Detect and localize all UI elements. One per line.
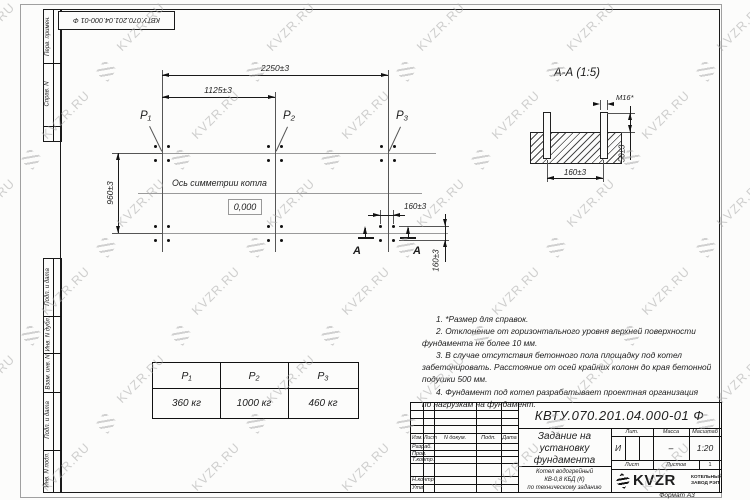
margin-label-text: Инв. N дубл. <box>45 316 51 351</box>
dim-text-960: 960±3 <box>103 173 117 213</box>
anchor-bolt-point <box>167 225 170 228</box>
anchor-bolt-point <box>167 239 170 242</box>
margin-label-podp-data-1: Подп. и дата <box>43 258 53 315</box>
lit-value: И <box>611 437 625 459</box>
list-label: Лист <box>611 462 653 468</box>
section-letter-right: А <box>413 245 421 257</box>
row-utv: Утв. <box>412 485 425 491</box>
doc-title-line: установку <box>518 442 611 454</box>
load-table-header-p2: P₂ <box>220 363 288 388</box>
anchor-bolt-point <box>267 145 270 148</box>
dim-line-960 <box>118 153 119 233</box>
dim-text-2250: 2250±3 <box>245 63 305 73</box>
load-table: P₁ P₂ P₃ 360 кг 1000 кг 460 кг <box>152 362 359 419</box>
anchor-bolt-point <box>167 159 170 162</box>
anchor-bolt-right <box>600 112 608 159</box>
massa-value: – <box>653 437 689 459</box>
row-prov: Пров. <box>412 451 427 457</box>
anchor-bolt-point <box>154 239 157 242</box>
note-line: забетонировать. Расстояние от осей крайн… <box>422 361 722 373</box>
margin-label-podp-data-2: Подп. и дата <box>43 391 53 449</box>
margin-label-inv-dubl: Инв. N дубл. <box>43 315 53 352</box>
row-nkontr: Н.контр. <box>412 477 435 483</box>
note-line: 2. Отклонение от горизонтального уровня … <box>422 325 722 337</box>
margin-label-text: Справ. N <box>45 81 51 106</box>
ext-line <box>600 100 601 110</box>
doc-title-line: фундамента <box>518 454 611 466</box>
plan-vline-p2 <box>275 138 276 252</box>
anchor-bolt-point <box>379 239 382 242</box>
company-line: ЗАВОД РЭП <box>691 481 721 487</box>
product-line: по техническому заданию <box>518 484 611 492</box>
kvzr-logo-icon <box>614 472 633 491</box>
dim-line-2250 <box>162 75 388 76</box>
col-podp: Подп. <box>476 435 501 441</box>
margin-label-vzam-inv: Взам. инв. N <box>43 352 53 391</box>
thread-callout: М16* <box>616 93 634 102</box>
note-line: 3. В случае отсутствия бетонного пола пл… <box>422 349 722 361</box>
row-razrab: Разраб. <box>412 444 432 450</box>
anchor-bolt-point <box>167 145 170 148</box>
plan-vline-p1 <box>162 138 163 252</box>
product-line: Котел водогрейный <box>518 468 611 476</box>
margin-label-perv-primen: Перв. примен. <box>43 9 53 62</box>
plan-row-line-top <box>140 153 436 154</box>
dim-text-1125: 1125±3 <box>188 85 248 95</box>
dim-text: 160±3 <box>432 249 441 271</box>
point-label-p1: P₁ <box>140 110 151 122</box>
margin-label-text: Подп. и дата <box>45 268 51 306</box>
col-doc: N докум. <box>434 435 476 441</box>
note-line: 4. Фундамент под котел разрабатывает про… <box>422 386 722 398</box>
anchor-bolt-point <box>154 159 157 162</box>
anchor-bolt-point <box>280 159 283 162</box>
margin-label-text: Перв. примен. <box>45 16 51 56</box>
listov-value: 1 <box>699 462 721 468</box>
section-cut-mark <box>358 237 374 240</box>
dim-line-160s <box>547 178 603 179</box>
doc-title-line: Задание на <box>518 430 611 442</box>
top-designation-text: КВТУ.070.201.04.000-01 Ф <box>73 16 160 25</box>
doc-title-cell: Задание на установку фундамента <box>518 430 611 466</box>
anchor-bolt-point <box>379 225 382 228</box>
dim-text-160v: 160±3 <box>429 242 443 278</box>
drawing-sheet: Перв. примен. Справ. N Подп. и дата Инв.… <box>0 0 750 500</box>
ext-line <box>399 240 449 241</box>
anchor-bolt-point <box>380 159 383 162</box>
anchor-bolt-point <box>280 145 283 148</box>
dim-text: 960±3 <box>105 181 115 205</box>
point-label-p2: P₂ <box>283 110 295 122</box>
note-line: подушки 500 мм. <box>422 373 722 385</box>
dim-line-1125 <box>162 97 275 98</box>
anchor-bolt-point <box>380 145 383 148</box>
company-name: КОТЕЛЬНЫЙ ЗАВОД РЭП <box>691 475 721 487</box>
section-letter-left: А <box>353 245 361 257</box>
dim-text-50: 50±3 <box>615 138 629 168</box>
scale-value: 1:20 <box>689 437 721 459</box>
ext-line <box>275 92 276 148</box>
margin-label-text: Взам. инв. N <box>45 354 51 389</box>
product-cell: Котел водогрейный КВ-0,8 КБД (К) по техн… <box>518 468 611 492</box>
anchor-bolt-point <box>267 225 270 228</box>
axis-label: Ось симметрии котла <box>172 178 267 188</box>
anchor-bolt-point <box>280 225 283 228</box>
massa-label: Масса <box>653 429 689 435</box>
margin-label-text: Инв. N подл. <box>45 452 51 487</box>
anchor-bolt-point <box>154 145 157 148</box>
notes-block: 1. *Размер для справок. 2. Отклонение от… <box>422 313 722 410</box>
dim-text-160s: 160±3 <box>555 168 595 177</box>
lit-label: Лит. <box>611 429 653 435</box>
dim-text: 50±3 <box>618 144 627 162</box>
section-view-title: А-А (1:5) <box>554 67 600 79</box>
watermark-text: KVZR.RU <box>0 0 18 54</box>
ext-line <box>388 70 389 148</box>
anchor-bolt-point <box>392 239 395 242</box>
title-block: Изм. Лист N докум. Подп. Дата Разраб. Пр… <box>410 402 722 493</box>
ext-line <box>112 233 162 234</box>
margin-label-sprav-n: Справ. N <box>43 62 53 125</box>
anchor-bolt-point <box>267 239 270 242</box>
watermark-text: KVZR.RU <box>0 352 18 406</box>
listov-label: Листов <box>653 462 699 468</box>
plan-symmetry-axis <box>138 193 422 194</box>
note-line: 1. *Размер для справок. <box>422 313 722 325</box>
margin-label-inv-podl: Инв. N подл. <box>43 449 53 491</box>
ext-line <box>112 153 162 154</box>
title-block-designation: КВТУ.070.201.04.000-01 Ф <box>518 404 721 427</box>
load-table-value-p3: 460 кг <box>288 388 358 418</box>
anchor-bolt-point <box>393 159 396 162</box>
margin-label-text: Подп. и дата <box>45 401 51 439</box>
load-table-value-p1: 360 кг <box>153 388 220 418</box>
anchor-bolt-point <box>280 239 283 242</box>
masshtab-label: Масштаб <box>689 429 721 435</box>
load-table-header-p3: P₃ <box>288 363 358 388</box>
ext-line <box>162 70 163 148</box>
plan-vline-p3 <box>388 138 389 252</box>
anchor-bolt-point <box>154 225 157 228</box>
anchor-bolt-left <box>543 112 551 159</box>
product-line: КВ-0,8 КБД (К) <box>518 476 611 484</box>
plan-row-line-bottom <box>140 233 448 234</box>
top-designation-stamp: КВТУ.070.201.04.000-01 Ф <box>58 11 175 30</box>
load-table-header-p1: P₁ <box>153 363 220 388</box>
anchor-bolt-point <box>393 145 396 148</box>
kvzr-logo-text: KVZR <box>633 472 676 489</box>
point-label-p3: P₃ <box>396 110 408 122</box>
col-izm: Изм. <box>412 435 423 441</box>
watermark-text: KVZR.RU <box>0 176 18 230</box>
load-table-value-p2: 1000 кг <box>220 388 288 418</box>
format-label: Формат А3 <box>637 491 717 499</box>
col-data: Дата <box>501 435 518 441</box>
row-tkontr: Т.контр. <box>412 457 434 463</box>
anchor-bolt-point <box>267 159 270 162</box>
anchor-bolt-point <box>392 225 395 228</box>
dim-text-160h: 160±3 <box>404 202 426 211</box>
zero-level-text: 0,000 <box>234 202 257 212</box>
note-line: фундамента не более 10 мм. <box>422 337 722 349</box>
zero-level-box: 0,000 <box>228 199 262 215</box>
